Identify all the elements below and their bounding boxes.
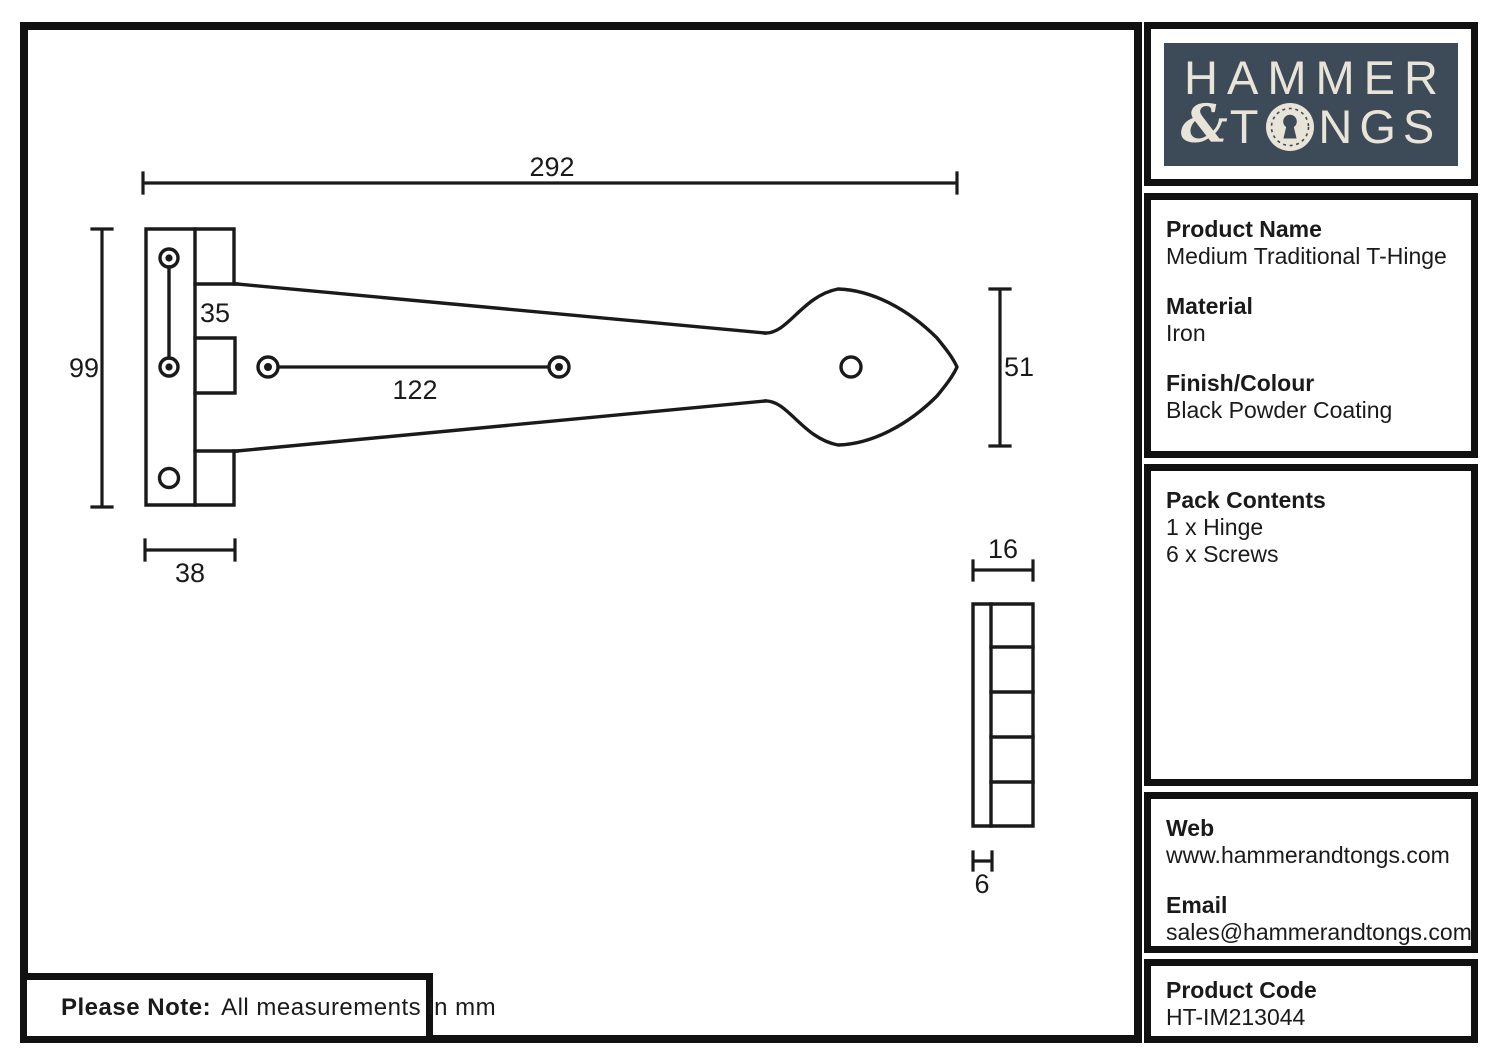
hinge-side-view bbox=[973, 604, 1033, 826]
dim-label-plate-height: 99 bbox=[69, 353, 99, 383]
dim-label-strap-root-width: 35 bbox=[200, 298, 230, 328]
dim-label-plate-width: 38 bbox=[175, 558, 205, 588]
strap-bottom-edge bbox=[237, 401, 765, 451]
dim-label-overall-length: 292 bbox=[529, 152, 574, 182]
dim-label-side-width: 16 bbox=[988, 534, 1018, 564]
strap-screw-hole-left-center bbox=[264, 363, 272, 371]
note-box: Please Note: All measurements in mm bbox=[20, 973, 433, 1043]
dim-label-strap-hole-spacing: 122 bbox=[392, 375, 437, 405]
product-spec-sheet: 292 99 35 122 38 51 16 6 Please Note: Al… bbox=[0, 0, 1500, 1061]
note-text: All measurements in mm bbox=[221, 994, 496, 1022]
hinge-front-view bbox=[146, 229, 957, 505]
side-view-outline bbox=[973, 604, 1033, 826]
knuckle-middle-outline bbox=[195, 338, 235, 393]
dim-label-head-width: 51 bbox=[1004, 352, 1034, 382]
strap-screw-hole-right-center bbox=[555, 363, 563, 371]
dim-label-thickness: 6 bbox=[974, 869, 989, 899]
dimension-plate-width bbox=[145, 540, 235, 560]
note-label: Please Note: bbox=[61, 994, 211, 1022]
strap-top-edge bbox=[237, 284, 765, 333]
plate-screw-hole-top-center bbox=[165, 254, 172, 261]
spear-screw-hole bbox=[841, 357, 861, 377]
t-hinge-technical-drawing: 292 99 35 122 38 51 16 6 bbox=[0, 0, 1500, 1061]
plate-screw-hole-bottom bbox=[160, 469, 179, 488]
dimension-thickness bbox=[973, 852, 992, 870]
plate-screw-hole-middle-center bbox=[165, 363, 172, 370]
